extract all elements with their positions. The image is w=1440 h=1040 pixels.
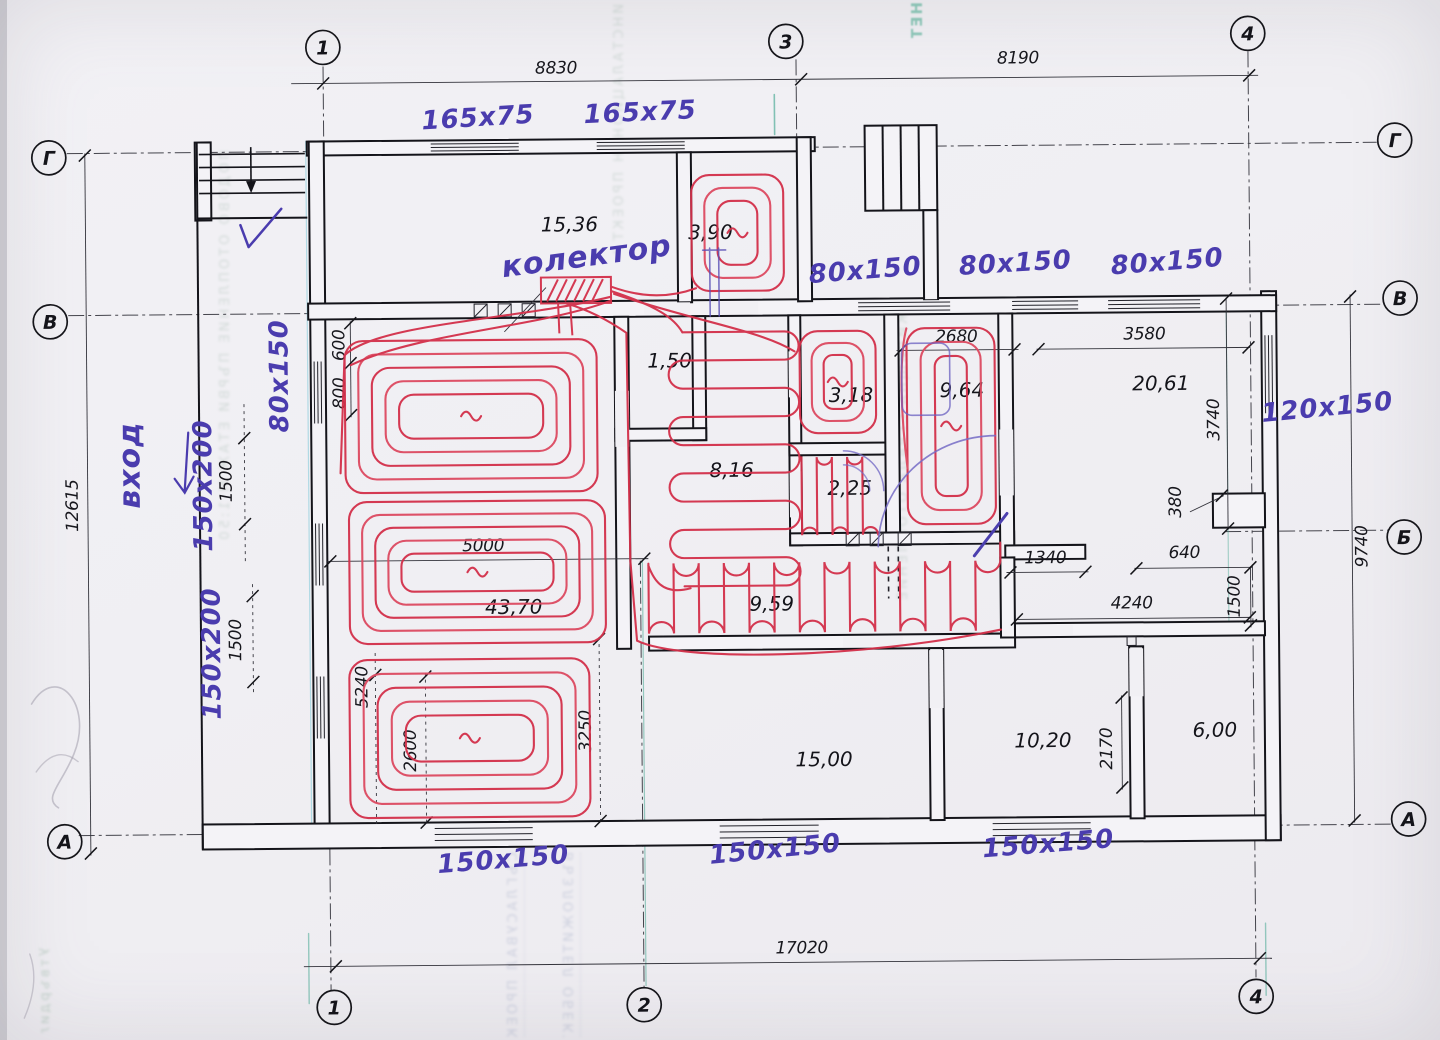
axis-bubble-A-left: А (55, 832, 72, 854)
pencil-scribble (31, 687, 80, 808)
area-vestibule: 15,36 (541, 212, 598, 236)
dim-5240: 5240 (352, 666, 372, 708)
entrance-check-arrow (240, 209, 281, 247)
axis-bubble-4-bottom: 4 (1248, 986, 1262, 1008)
dim-1500-left-upper: 1500 (216, 460, 236, 502)
axis-bubble-4-top: 4 (1240, 23, 1254, 45)
scanned-floor-plan: ПОДОВО ОТОПЛЕНИЕ ПЪРВИ ЕТАЖ М 1:50 ИНСТА… (0, 0, 1440, 1040)
dim-1500-left-lower: 1500 (226, 619, 246, 661)
dim-1500-right: 1500 (1225, 575, 1245, 617)
dim-640: 640 (1168, 543, 1200, 563)
area-corridor: 8,16 (709, 458, 754, 482)
area-room-bottom-mid: 10,20 (1014, 728, 1071, 752)
heating-coil-bath (901, 328, 996, 525)
axis-bubble-A-right: А (1399, 809, 1416, 831)
duct-label-80x150: 80x150 (808, 251, 923, 290)
dim-800: 800 (330, 377, 350, 409)
axis-bubble-1-bottom: 1 (328, 997, 341, 1019)
dim-8190: 8190 (997, 48, 1039, 68)
dim-17020: 17020 (775, 938, 828, 958)
area-living: 43,70 (485, 595, 542, 619)
axis-bubble-B-right: Б (1397, 527, 1412, 549)
stairs-direction-arrow (246, 181, 256, 193)
dim-380: 380 (1166, 486, 1186, 518)
axis-bubble-2-bottom: 2 (638, 995, 651, 1017)
dim-1340: 1340 (1024, 548, 1066, 568)
area-corridor-south: 9,59 (749, 591, 794, 615)
axis-bubble-V-left: В (43, 312, 58, 334)
duct-label-165x75: 165x75 (583, 95, 697, 130)
dim-2170: 2170 (1097, 728, 1117, 770)
dim-3250: 3250 (576, 710, 596, 752)
handwritten-annotations: 165x75 165x75 80x150 80x150 80x150 80x15… (109, 89, 1398, 883)
heating-coil-living-mid (349, 500, 606, 644)
dim-3740: 3740 (1204, 399, 1224, 441)
axis-bubble-3-top: 3 (779, 31, 792, 53)
heating-coil-vestibule (691, 174, 784, 291)
heating-supply-pipes (339, 284, 1001, 659)
axis-bubble-1-top: 1 (316, 37, 329, 59)
duct-label-165x75: 165x75 (421, 100, 536, 137)
duct-label-80x150-west: 80x150 (264, 319, 295, 432)
room-area-labels: 15,36 3,90 1,50 8,16 3,18 2,25 9,64 20,6… (482, 207, 1238, 775)
dim-8830: 8830 (535, 58, 577, 78)
area-hall-top: 3,90 (688, 220, 733, 244)
axis-bubble-G-right: Г (1389, 130, 1402, 152)
floor-plan-drawing: 8830 8190 17020 12615 9740 2680 3580 374… (0, 0, 1440, 1040)
axis-bubble-G-left: Г (43, 148, 56, 170)
dim-12615: 12615 (63, 479, 83, 532)
entrance-label: вход (112, 421, 148, 508)
area-bath-small: 2,25 (827, 476, 872, 500)
area-room-bottom-right: 6,00 (1192, 717, 1237, 741)
dim-9740: 9740 (1352, 525, 1372, 567)
dim-2600: 2600 (401, 730, 421, 772)
heating-coil-wc (799, 331, 876, 434)
dim-4240: 4240 (1111, 593, 1153, 613)
heating-serpentine-corridor-south (648, 561, 1001, 634)
pencil-scribble (36, 755, 78, 772)
area-bath: 9,64 (940, 378, 985, 402)
dim-600: 600 (329, 329, 349, 361)
area-room-bottom-left: 15,00 (795, 747, 852, 771)
pencil-scribble (24, 954, 34, 1018)
duct-label-150x200: 150x200 (188, 419, 219, 552)
duct-label-150x200: 150x200 (197, 587, 228, 720)
entrance-stairs (199, 147, 305, 194)
duct-label-80x150: 80x150 (1110, 243, 1225, 282)
duct-label-120x150: 120x150 (1260, 386, 1395, 429)
axis-bubble-V-right: В (1393, 288, 1408, 310)
duct-label-80x150: 80x150 (958, 245, 1073, 282)
dim-3580: 3580 (1123, 324, 1165, 344)
area-room-right: 20,61 (1132, 371, 1189, 395)
heating-coil-living-top (344, 339, 597, 493)
heating-coil-living-bottom (349, 658, 590, 818)
